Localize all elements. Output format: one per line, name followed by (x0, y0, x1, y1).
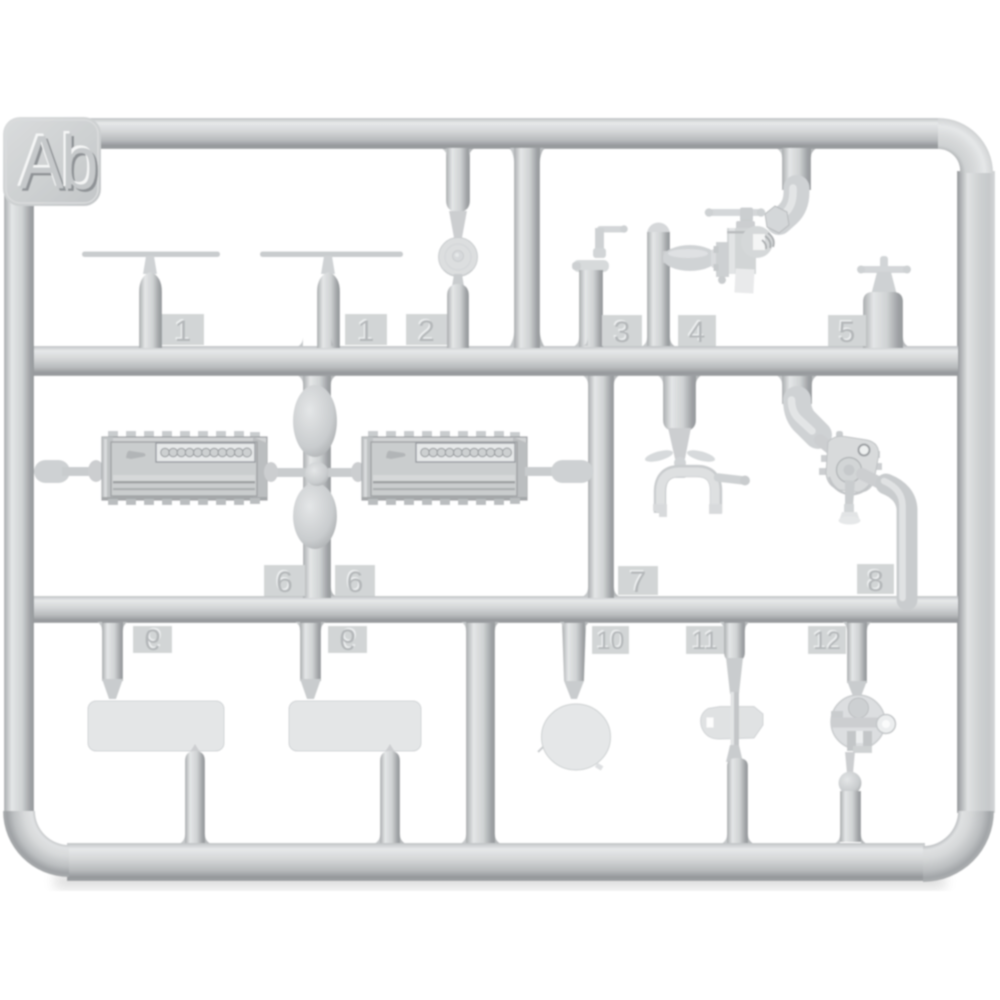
svg-text:9: 9 (339, 624, 356, 657)
svg-text:7: 7 (630, 566, 647, 599)
svg-text:4: 4 (689, 316, 706, 349)
svg-text:2: 2 (418, 315, 435, 348)
svg-text:10: 10 (597, 627, 625, 655)
svg-text:8: 8 (867, 565, 884, 598)
svg-text:1: 1 (358, 315, 375, 348)
svg-text:5: 5 (839, 316, 856, 349)
svg-text:3: 3 (614, 316, 631, 349)
svg-text:6: 6 (276, 566, 293, 599)
svg-text:12: 12 (813, 627, 841, 655)
svg-text:9: 9 (144, 624, 161, 657)
svg-text:1: 1 (175, 315, 192, 348)
svg-text:6: 6 (347, 566, 364, 599)
svg-text:Ab: Ab (19, 120, 96, 205)
svg-text:11: 11 (692, 627, 718, 655)
